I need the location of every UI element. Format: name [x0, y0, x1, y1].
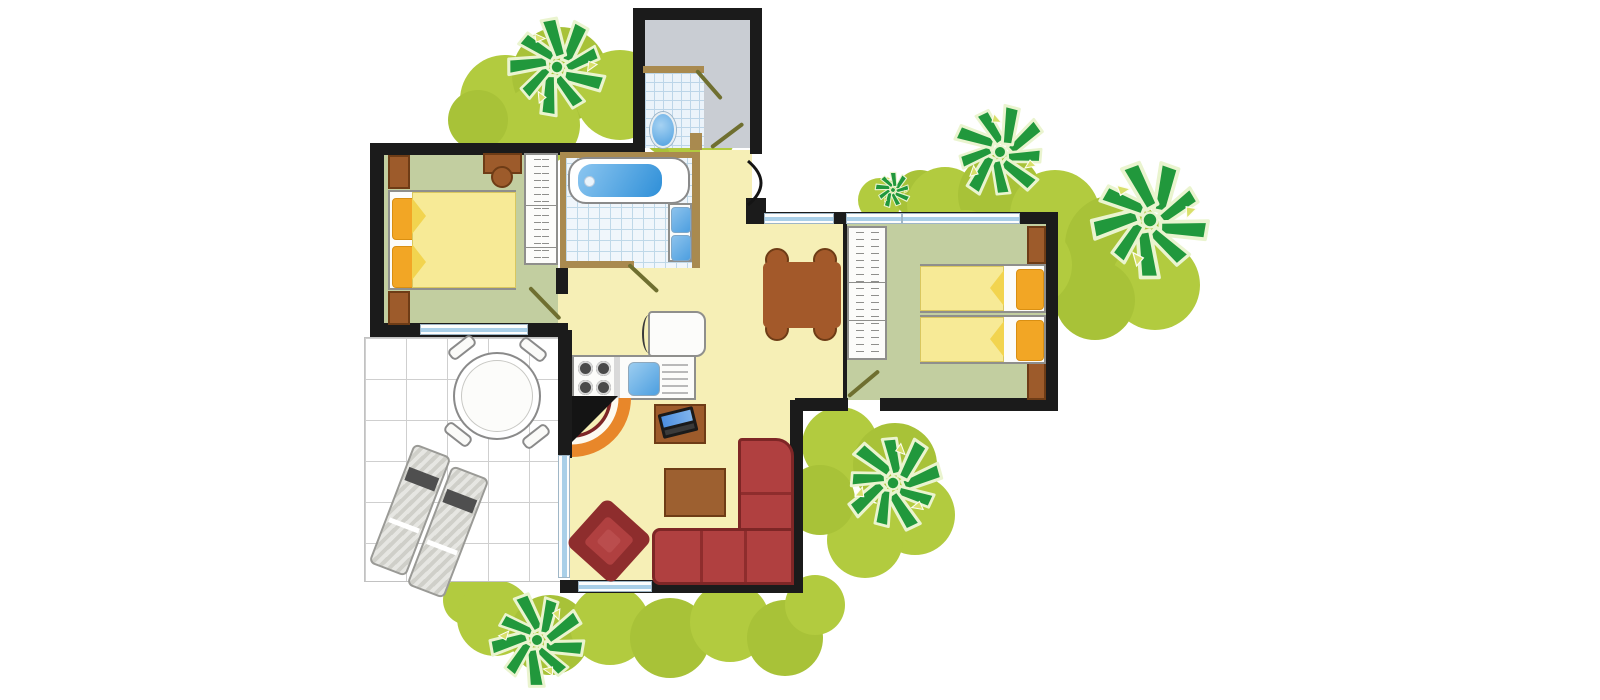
wardrobe-bedroom2 [847, 226, 887, 360]
window-living-top [764, 213, 834, 224]
sofa-section-horizontal [652, 528, 794, 585]
wall-left [370, 143, 384, 337]
partition-wc-post [690, 133, 702, 150]
window-bedroom2-b [902, 213, 1020, 224]
sofa-seam [700, 531, 703, 582]
wash-basin [671, 207, 691, 233]
sofa-seam [741, 492, 791, 495]
partition-bath-bottom [560, 261, 634, 268]
kitchen-sink [628, 362, 660, 396]
blanket-fold [990, 270, 1004, 306]
nightstand [388, 291, 410, 325]
nightstand [388, 155, 410, 189]
bathtub-drain [584, 176, 595, 187]
wall-bedroom1-east-stub [556, 268, 568, 294]
blanket-fold [990, 321, 1004, 357]
hob-burner [596, 361, 611, 376]
terrace-round-table [453, 352, 541, 440]
double-bed-blanket [412, 192, 516, 288]
blanket-fold [412, 198, 426, 234]
sink-drainer [662, 364, 688, 394]
floorplan-canvas [0, 0, 1600, 700]
wash-basin [671, 235, 691, 261]
corner-fireplace [552, 392, 648, 488]
partition-bath-left [560, 152, 566, 268]
window-living-bottom [578, 581, 652, 592]
toilet [650, 112, 676, 148]
wall-entry-left [633, 8, 645, 152]
bedroom1-chair-seat [491, 166, 513, 188]
wall-bedroom2-right [1046, 212, 1058, 411]
fridge [648, 311, 706, 357]
dining-table [763, 262, 841, 328]
wardrobe-bedroom1 [524, 153, 558, 265]
fridge-door-arc [642, 315, 656, 353]
window-bedroom2-a [846, 213, 902, 224]
partition-bath-right [692, 152, 700, 268]
wall-entry-right [750, 8, 762, 154]
window-bedroom1 [420, 324, 528, 335]
pillow [1016, 320, 1044, 361]
wall-entry-top [633, 8, 762, 20]
nightstand [1027, 226, 1046, 264]
pillow [1016, 269, 1044, 310]
entrance-door-arc [744, 158, 778, 208]
coffee-table [664, 468, 726, 517]
blanket-fold [412, 244, 426, 280]
nightstand [1027, 362, 1046, 400]
sofa-seam [744, 531, 747, 582]
hob-burner [578, 361, 593, 376]
